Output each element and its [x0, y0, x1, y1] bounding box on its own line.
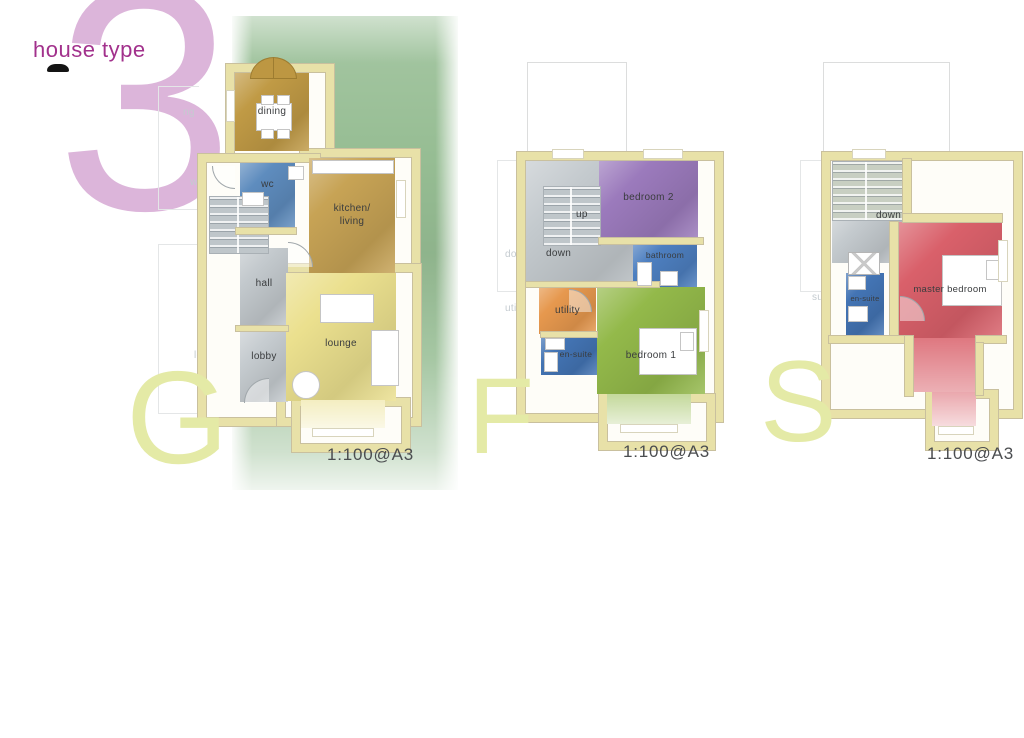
internal-wall: [903, 159, 911, 221]
room-master-corridor: [912, 338, 976, 392]
window: [998, 240, 1008, 282]
scale-label-ground: 1:100@A3: [327, 445, 414, 465]
floorplan-sheet: 3 house type ng wc hall lobby: [0, 0, 1024, 738]
neighbour-outline: [800, 160, 823, 292]
internal-wall: [905, 336, 913, 396]
room-master-bay: [932, 392, 976, 426]
window: [852, 149, 886, 159]
room-label-master-bedroom: master bedroom: [898, 284, 1002, 295]
internal-wall: [976, 336, 1006, 343]
scale-label-first: 1:100@A3: [623, 442, 710, 462]
internal-wall: [976, 343, 983, 395]
internal-wall: [829, 336, 907, 343]
toilet: [848, 306, 868, 322]
roof-outline: [823, 62, 950, 152]
floor-letter-second: S: [760, 345, 837, 460]
room-label-down-second: down: [876, 210, 901, 221]
shower-hatch-icon: [848, 252, 880, 275]
internal-wall: [903, 214, 1002, 222]
scale-label-second: 1:100@A3: [927, 444, 1014, 464]
sink: [848, 276, 866, 290]
floor-letter-ground: G: [126, 352, 229, 484]
floor-letter-first: F: [468, 362, 534, 470]
window: [938, 426, 974, 435]
internal-wall: [890, 222, 898, 338]
room-label-ensuite-second: en-suite: [846, 294, 884, 303]
